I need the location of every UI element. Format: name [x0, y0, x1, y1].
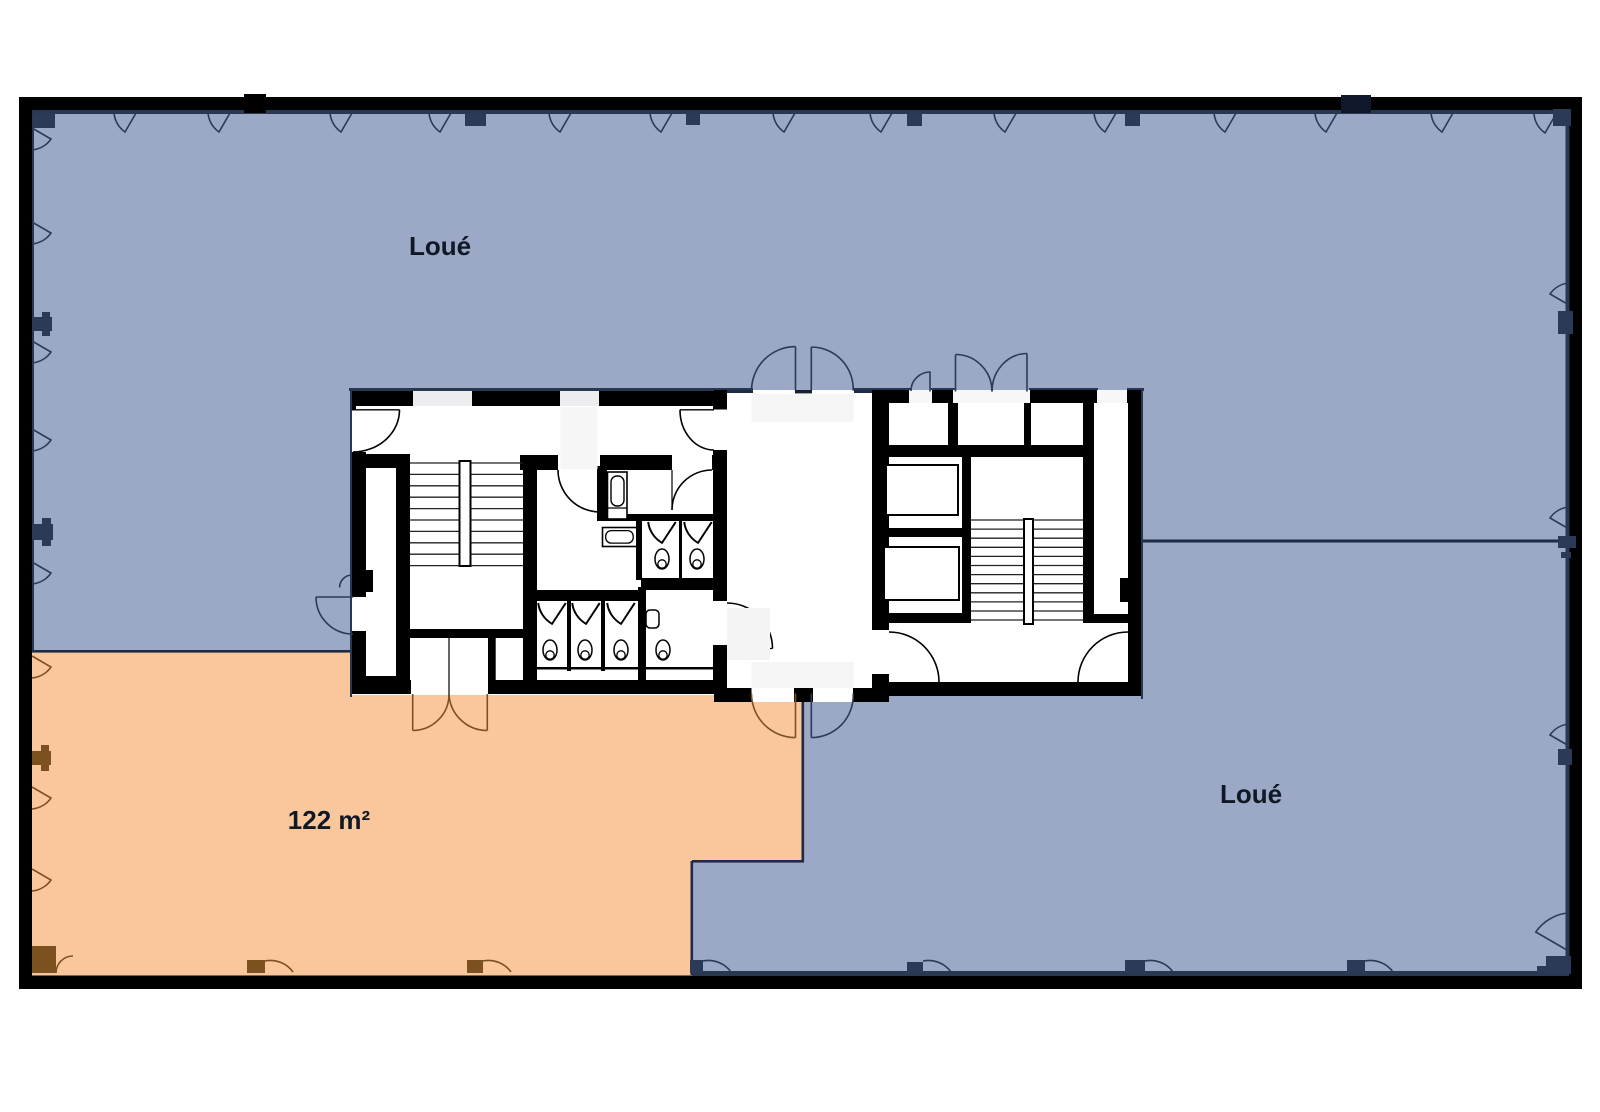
svg-text:Loué: Loué [409, 231, 471, 261]
svg-text:Loué: Loué [1220, 779, 1282, 809]
svg-text:122 m²: 122 m² [288, 805, 371, 835]
